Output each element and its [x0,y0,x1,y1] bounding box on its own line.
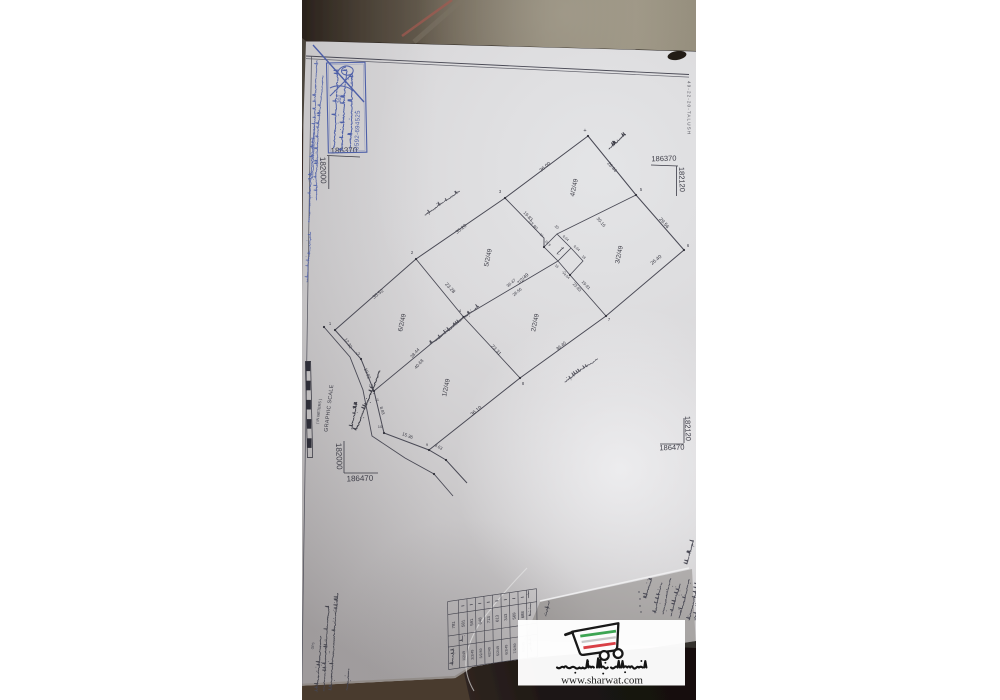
svg-text:186470: 186470 [346,474,374,484]
svg-text:12: 12 [356,351,361,356]
svg-text:688: 688 [520,610,525,618]
svg-text:4/2/49: 4/2/49 [487,647,491,658]
svg-text:11: 11 [375,398,379,402]
svg-text:186370: 186370 [651,154,676,164]
svg-text:6/2/49: 6/2/49 [504,644,508,655]
svg-text:186470: 186470 [659,443,684,453]
svg-text:182000: 182000 [318,157,328,185]
svg-text:10: 10 [378,424,383,429]
svg-text:182000: 182000 [334,443,344,471]
svg-text:182120: 182120 [683,416,693,441]
svg-text:5/2/49: 5/2/49 [496,646,500,657]
svg-text:17: 17 [562,271,566,275]
svg-text:www.sharwat.com: www.sharwat.com [561,675,643,687]
svg-text:3/2/49: 3/2/49 [479,648,483,659]
svg-text:7/2/49: 7/2/49 [513,643,517,654]
svg-text:182120: 182120 [677,167,687,192]
svg-text:302: 302 [337,94,343,103]
svg-text:648: 648 [478,616,483,624]
svg-text:0592-694525: 0592-694525 [354,110,362,150]
svg-text:781: 781 [451,620,456,628]
svg-text:+: + [583,128,586,134]
svg-text:1/2/49: 1/2/49 [462,651,466,662]
svg-text:49-22-20-TALUSH: 49-22-20-TALUSH [687,81,692,135]
svg-text:2/2/49: 2/2/49 [471,649,475,660]
